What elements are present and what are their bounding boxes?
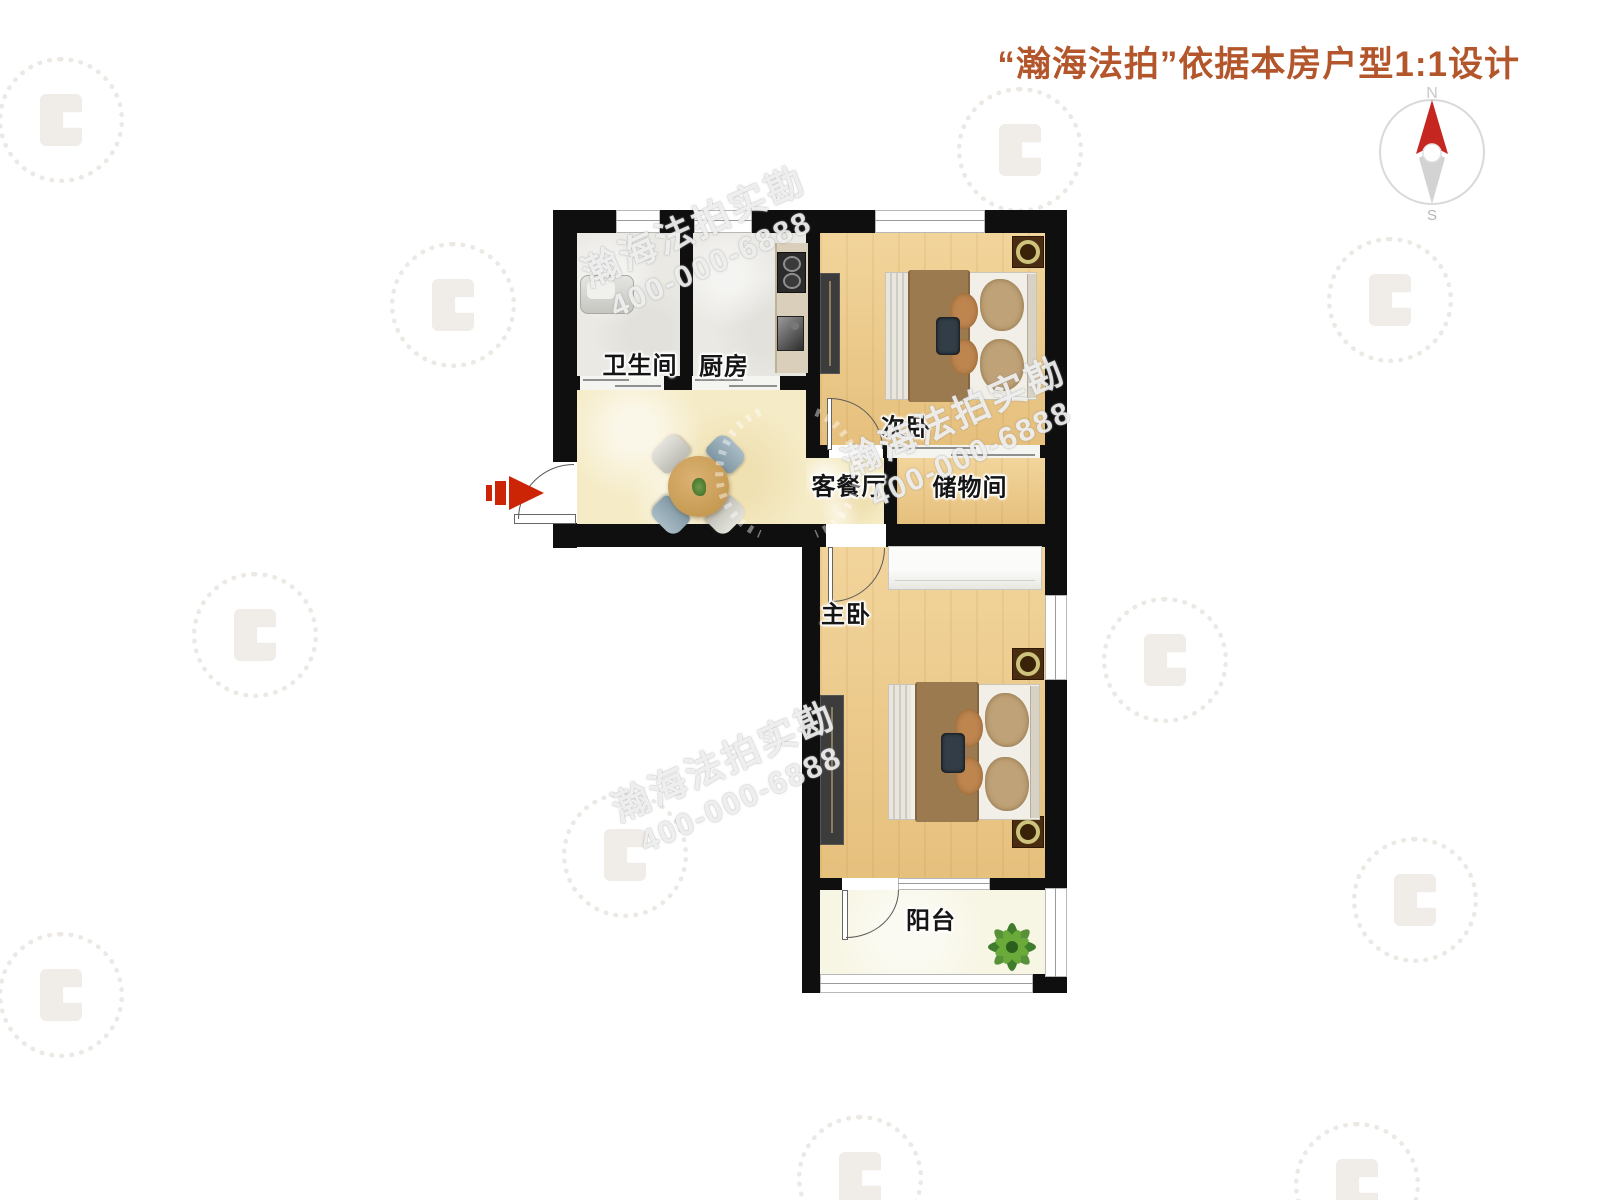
room-label-balcony: 阳台 bbox=[906, 901, 956, 936]
floorplan-page: “瀚海法拍”依据本房户型1:1设计 N S bbox=[0, 0, 1600, 1200]
stove bbox=[777, 252, 806, 293]
watermark-emblem bbox=[0, 57, 124, 183]
washbasin bbox=[580, 275, 634, 314]
bed bbox=[888, 684, 1040, 820]
compass-icon: N S bbox=[1374, 80, 1490, 222]
plant-icon bbox=[986, 921, 1038, 973]
room-label-master-bedroom: 主卧 bbox=[821, 595, 871, 630]
watermark-emblem bbox=[562, 792, 688, 918]
room-label-storage: 储物间 bbox=[933, 468, 1008, 503]
window bbox=[898, 878, 990, 890]
headboard bbox=[1027, 274, 1036, 398]
nightstand bbox=[1012, 816, 1044, 848]
pillow bbox=[980, 279, 1024, 331]
bed-accessory bbox=[941, 733, 965, 773]
wall bbox=[680, 230, 693, 380]
watermark-emblem bbox=[1327, 237, 1453, 363]
room-label-second-bedroom: 次卧 bbox=[881, 408, 931, 443]
bed-accessory bbox=[936, 317, 960, 355]
nightstand bbox=[1012, 236, 1044, 268]
window bbox=[694, 210, 752, 233]
room-label-bathroom: 卫生间 bbox=[603, 346, 678, 381]
compass-south-label: S bbox=[1427, 207, 1437, 222]
compass-north-label: N bbox=[1426, 85, 1438, 102]
room-label-kitchen: 厨房 bbox=[699, 347, 749, 382]
kitchen-sink bbox=[777, 316, 804, 351]
bed-foot bbox=[886, 273, 908, 399]
watermark-emblem bbox=[797, 1115, 923, 1200]
watermark-emblem bbox=[1102, 597, 1228, 723]
pillow bbox=[980, 339, 1024, 391]
window bbox=[1045, 595, 1067, 680]
bed bbox=[885, 272, 1037, 400]
window bbox=[1045, 888, 1067, 977]
window bbox=[820, 974, 1033, 993]
balcony-door-opening bbox=[842, 878, 900, 890]
watermark-emblem bbox=[1294, 1122, 1420, 1200]
partition-window bbox=[887, 445, 1040, 458]
watermark-emblem bbox=[1352, 837, 1478, 963]
window bbox=[616, 210, 660, 233]
watermark-emblem bbox=[957, 87, 1083, 213]
headboard bbox=[1030, 686, 1039, 818]
wardrobe bbox=[888, 546, 1042, 590]
pillow bbox=[985, 757, 1029, 811]
watermark-emblem bbox=[192, 572, 318, 698]
entrance-arrow-icon bbox=[486, 476, 546, 510]
pillow bbox=[985, 693, 1029, 747]
watermark-wreath-icon bbox=[708, 398, 868, 548]
wall bbox=[886, 524, 1045, 547]
nightstand bbox=[1012, 648, 1044, 680]
watermark-emblem bbox=[390, 242, 516, 368]
wall bbox=[802, 524, 820, 993]
bed-foot bbox=[889, 685, 911, 819]
wardrobe bbox=[820, 695, 844, 845]
watermark-emblem bbox=[0, 932, 124, 1058]
wardrobe bbox=[820, 273, 840, 374]
window bbox=[875, 210, 985, 233]
